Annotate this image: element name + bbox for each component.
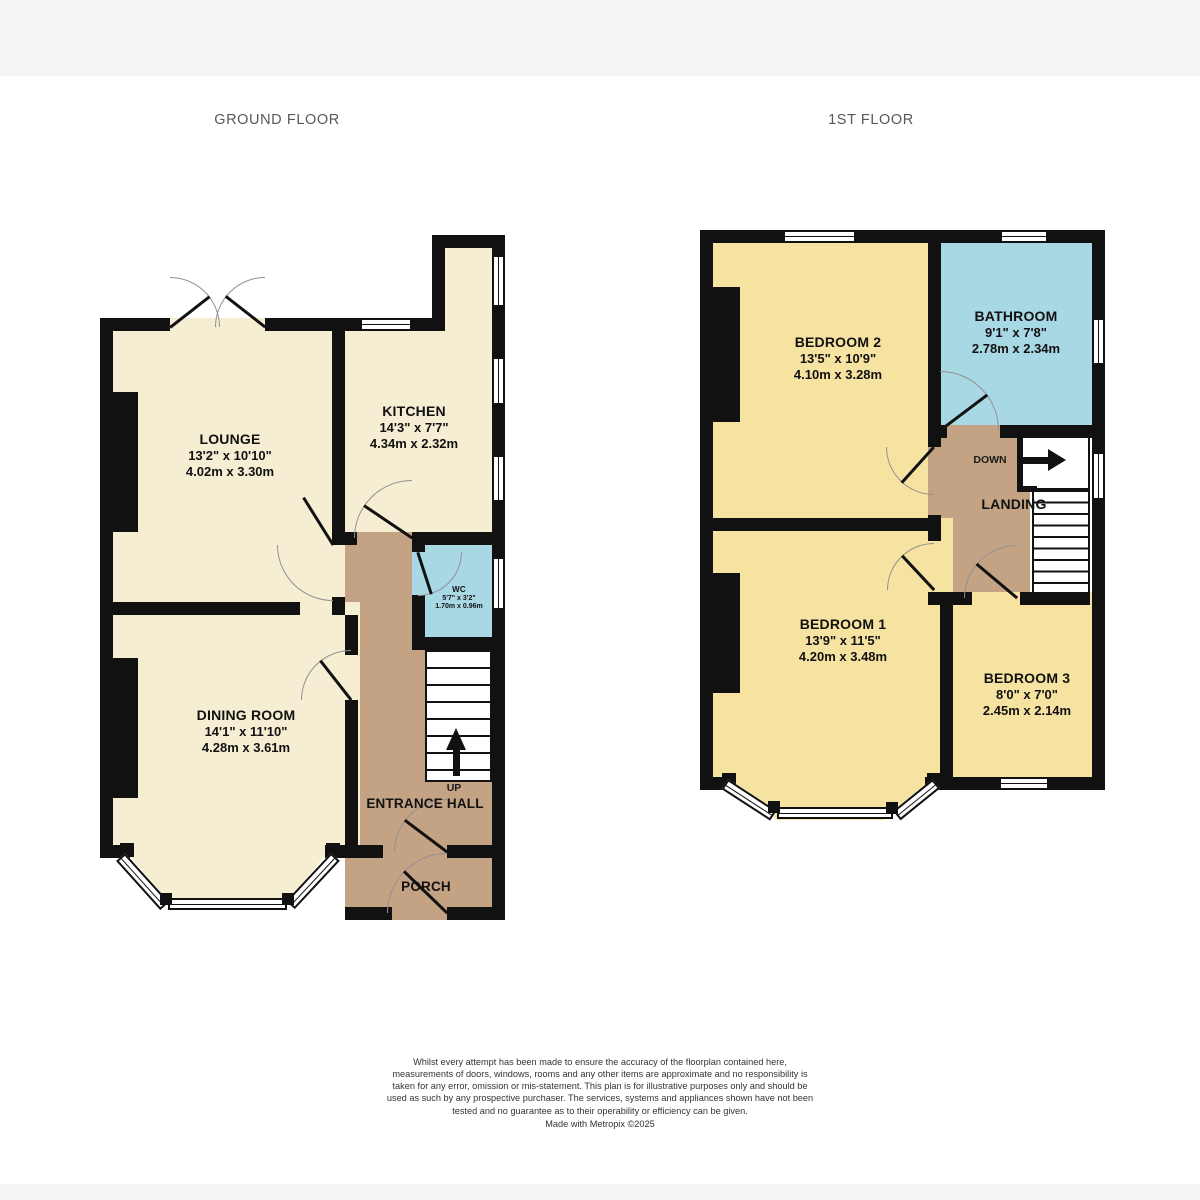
bay-post — [282, 893, 294, 905]
wall — [265, 318, 360, 331]
room-dims-metric: 2.45m x 2.14m — [937, 703, 1117, 719]
wall — [345, 845, 383, 858]
room-name: LOUNGE — [120, 431, 340, 448]
wall — [953, 777, 999, 790]
bay-window-bottom — [777, 807, 893, 819]
bathroom-window — [1000, 230, 1048, 243]
first-floor-title: 1ST FLOOR — [771, 112, 971, 128]
ground-floor-plan: LOUNGE 13'2" x 10'10" 4.02m x 3.30m KITC… — [100, 235, 505, 920]
wall — [492, 235, 505, 255]
up-arrow-icon — [446, 728, 466, 750]
down-label: DOWN — [962, 454, 1018, 466]
up-arrow-shaft — [453, 748, 460, 776]
room-name: BATHROOM — [916, 308, 1116, 325]
disclaimer: Whilst every attempt has been made to en… — [385, 1056, 815, 1130]
kitchen-label: KITCHEN 14'3" x 7'7" 4.34m x 2.32m — [314, 403, 514, 452]
bedroom2-label: BEDROOM 2 13'5" x 10'9" 4.10m x 3.28m — [728, 334, 948, 383]
wc-label: WC 5'7" x 3'2" 1.70m x 0.96m — [409, 585, 509, 612]
wall — [447, 907, 505, 920]
room-name: BEDROOM 2 — [728, 334, 948, 351]
bottom-band — [0, 1184, 1200, 1200]
down-arrow-icon — [1048, 449, 1066, 471]
room-dims-metric: 4.02m x 3.30m — [120, 464, 340, 480]
entrance-hall-label: ENTRANCE HALL — [325, 796, 525, 812]
wall — [100, 318, 113, 858]
wall — [700, 518, 940, 531]
bay-window-bottom — [168, 898, 287, 910]
room-dims-metric: 4.34m x 2.32m — [314, 436, 514, 452]
wall — [492, 502, 505, 557]
bay-post — [160, 893, 172, 905]
room-name: KITCHEN — [314, 403, 514, 420]
room-dims-imperial: 8'0" x 7'0" — [937, 687, 1117, 703]
wall — [345, 907, 392, 920]
wall — [332, 597, 345, 615]
bathroom-label: BATHROOM 9'1" x 7'8" 2.78m x 2.34m — [916, 308, 1116, 357]
room-dims-imperial: 13'9" x 11'5" — [733, 633, 953, 649]
metropix-credit: Made with Metropix ©2025 — [385, 1118, 815, 1130]
wall — [1020, 592, 1090, 605]
wall — [1092, 365, 1105, 452]
wall — [345, 615, 358, 655]
room-dims-metric: 1.70m x 0.96m — [409, 603, 509, 612]
window — [492, 255, 505, 307]
room-name: ENTRANCE HALL — [325, 796, 525, 812]
wall — [447, 845, 505, 858]
room-dims-imperial: 5'7" x 3'2" — [409, 595, 509, 604]
room-name: BEDROOM 1 — [733, 616, 953, 633]
lounge-label: LOUNGE 13'2" x 10'10" 4.02m x 3.30m — [120, 431, 340, 480]
wall — [1047, 777, 1105, 790]
room-dims-metric: 4.20m x 3.48m — [733, 649, 953, 665]
room-name: LANDING — [934, 496, 1094, 513]
up-label: UP — [434, 782, 474, 794]
wall — [100, 602, 300, 615]
bay-post — [768, 801, 780, 813]
wall — [492, 610, 505, 920]
room-dims-imperial: 13'2" x 10'10" — [120, 448, 340, 464]
first-floor-plan: BEDROOM 2 13'5" x 10'9" 4.10m x 3.28m BA… — [700, 230, 1105, 830]
room-dims-imperial: 9'1" x 7'8" — [916, 325, 1116, 341]
room-name: PORCH — [346, 879, 506, 895]
landing-label: LANDING — [934, 496, 1094, 513]
room-name: WC — [409, 585, 509, 595]
ground-floor-title: GROUND FLOOR — [177, 112, 377, 128]
wall — [1092, 500, 1105, 790]
window — [492, 455, 505, 502]
wall — [412, 318, 445, 331]
bedroom2-window — [783, 230, 856, 243]
window — [492, 357, 505, 405]
wall — [492, 307, 505, 357]
wall — [700, 230, 713, 790]
top-band — [0, 0, 1200, 76]
room-dims-imperial: 13'5" x 10'9" — [728, 351, 948, 367]
room-dims-metric: 4.10m x 3.28m — [728, 367, 948, 383]
room-dims-metric: 2.78m x 2.34m — [916, 341, 1116, 357]
room-name: BEDROOM 3 — [937, 670, 1117, 687]
kitchen-window — [360, 318, 412, 331]
down-arrow-shaft — [1020, 457, 1048, 464]
room-dims-metric: 4.28m x 3.61m — [136, 740, 356, 756]
dining-room-label: DINING ROOM 14'1" x 11'10" 4.28m x 3.61m — [136, 707, 356, 756]
wall — [412, 637, 492, 650]
bay-post — [886, 802, 898, 814]
wall — [432, 235, 445, 331]
room-name: DINING ROOM — [136, 707, 356, 724]
bedroom1-label: BEDROOM 1 13'9" x 11'5" 4.20m x 3.48m — [733, 616, 953, 665]
chimney-breast — [113, 658, 138, 798]
porch-label: PORCH — [346, 879, 506, 895]
bedroom3-label: BEDROOM 3 8'0" x 7'0" 2.45m x 2.14m — [937, 670, 1117, 719]
bedroom3-window — [999, 777, 1049, 790]
room-dims-imperial: 14'1" x 11'10" — [136, 724, 356, 740]
wall — [1000, 425, 1105, 438]
wall — [412, 532, 492, 545]
window — [1092, 452, 1105, 500]
room-dims-imperial: 14'3" x 7'7" — [314, 420, 514, 436]
wall — [1092, 230, 1105, 318]
disclaimer-text: Whilst every attempt has been made to en… — [387, 1057, 813, 1116]
wall — [1017, 486, 1037, 492]
